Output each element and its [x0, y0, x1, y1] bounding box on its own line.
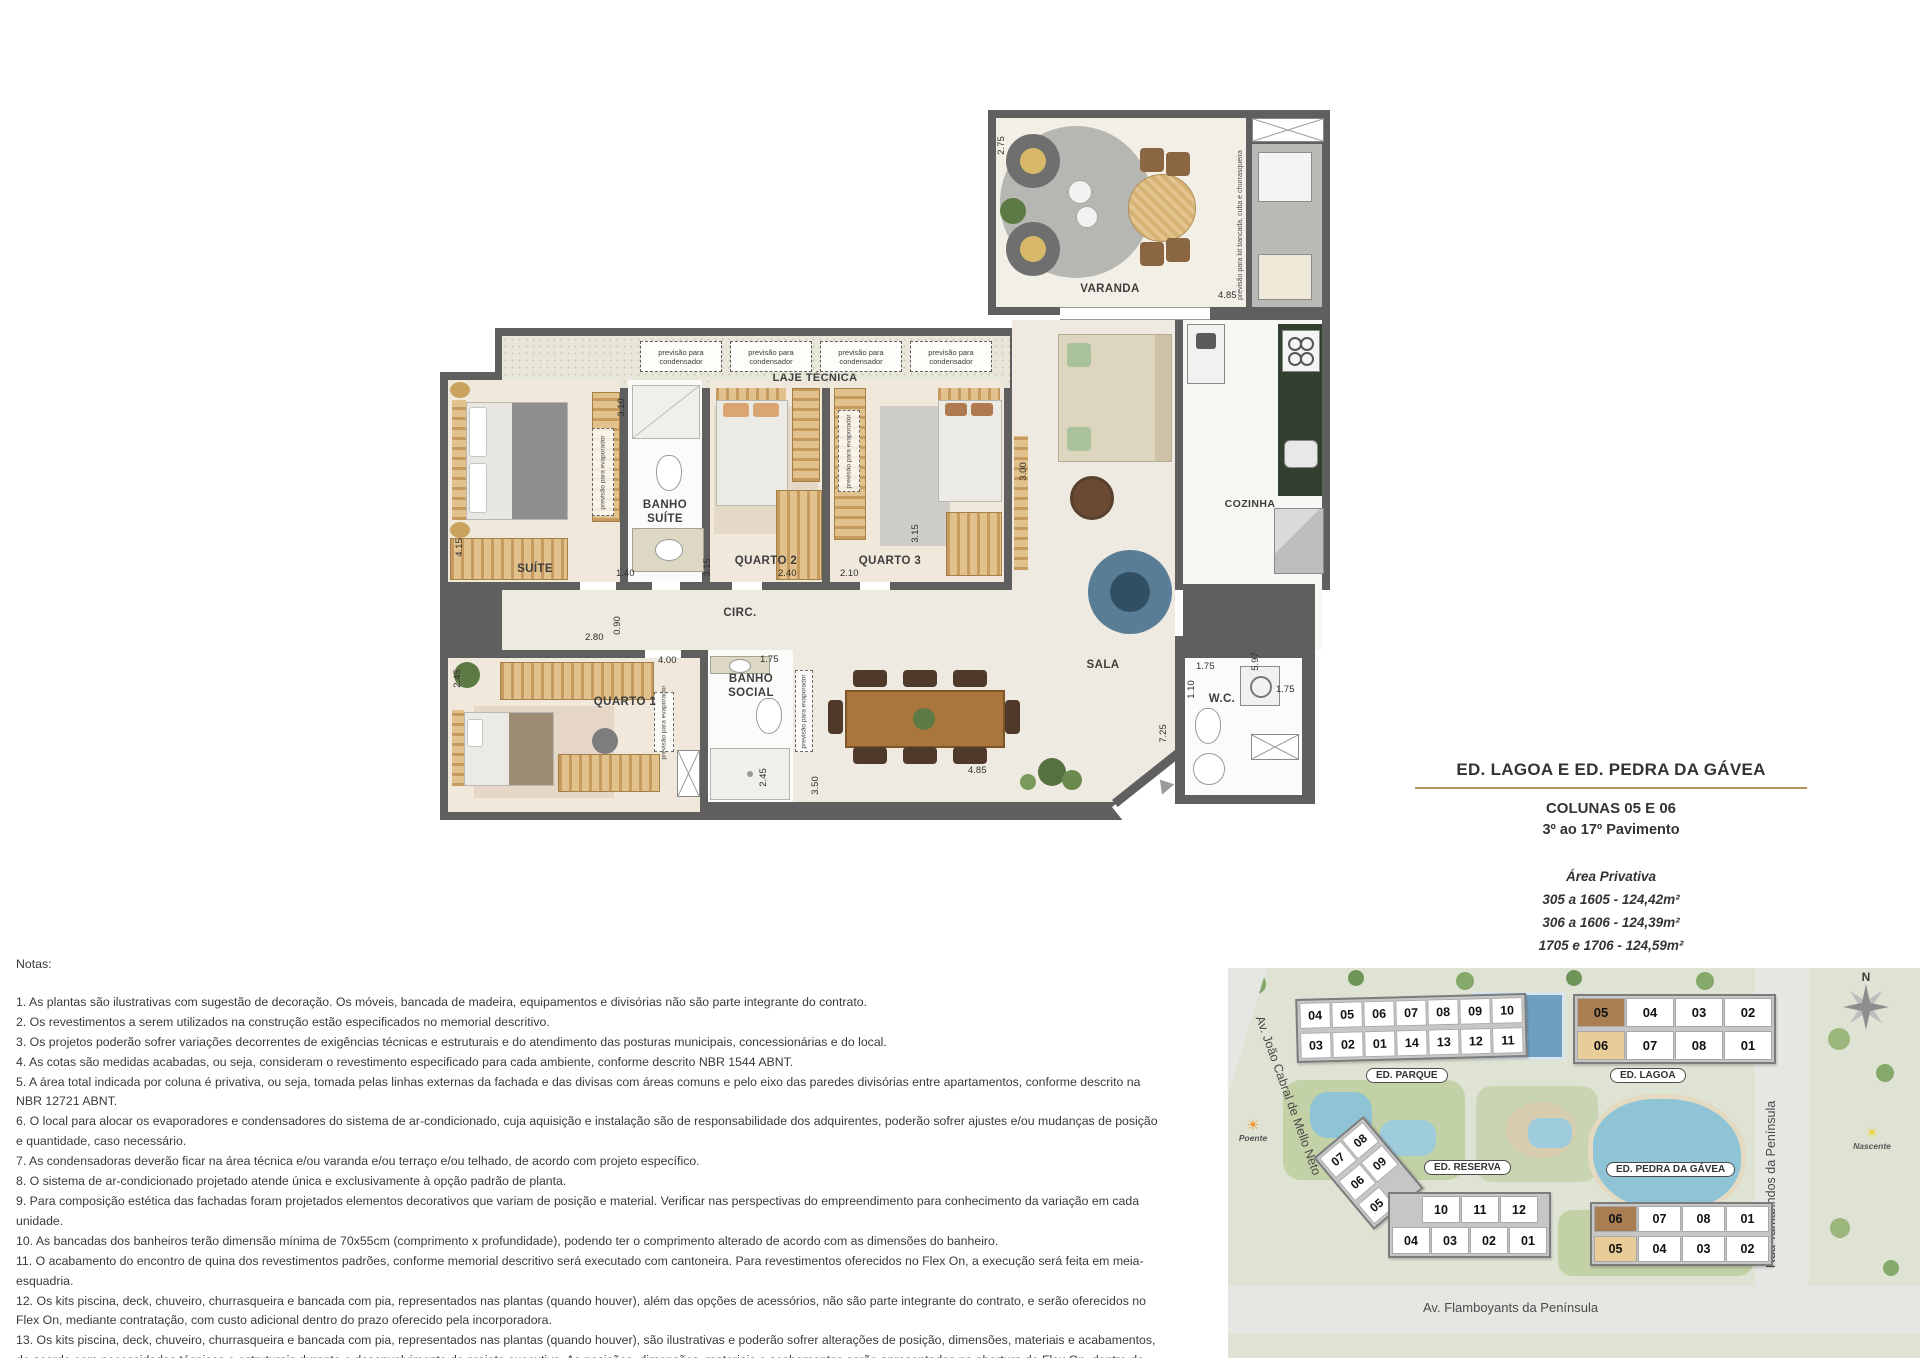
note-item: 4. As cotas são medidas acabadas, ou sej… — [16, 1053, 1166, 1073]
pillow — [467, 719, 483, 747]
building-reserva: 10 11 12 04 03 02 01 — [1388, 1192, 1551, 1258]
pillow — [971, 403, 993, 416]
compass-north-label: N — [1836, 970, 1896, 984]
unit-row: 04 03 02 01 — [1392, 1227, 1547, 1254]
cozinha-label: COZINHA — [1190, 498, 1310, 511]
note-item: 10. As bancadas dos banheiros terão dime… — [16, 1232, 1166, 1252]
varanda-label: VARANDA — [1040, 282, 1180, 296]
lagoon-pool — [1588, 1094, 1746, 1216]
armchair — [1110, 572, 1150, 612]
building-pedra-label: ED. PEDRA DA GÁVEA — [1606, 1162, 1735, 1177]
unit-row: 10 11 12 — [1422, 1196, 1547, 1223]
unit: 03 — [1300, 1032, 1332, 1059]
varanda-table — [1128, 174, 1196, 242]
toilet — [656, 455, 682, 491]
evaporator-note: previsão para evaporador — [600, 435, 607, 509]
dimension-label: 2.40 — [778, 568, 797, 579]
unit: 01 — [1509, 1227, 1547, 1254]
tree-icon — [1830, 1218, 1850, 1238]
dining-chair — [828, 700, 843, 734]
dimension-label: 2.80 — [585, 632, 604, 643]
unit: 04 — [1626, 998, 1674, 1027]
unit: 04 — [1638, 1236, 1681, 1262]
suite-bed — [466, 402, 568, 520]
tree-icon — [1566, 970, 1582, 986]
area-line: 306 a 1606 - 124,39m² — [1405, 912, 1817, 935]
unit: 10 — [1491, 997, 1523, 1024]
dimension-label: 3.10 — [616, 398, 627, 417]
wc-shaft — [1251, 734, 1299, 760]
sun-east: ☀ Nascente — [1844, 1126, 1900, 1151]
banho-suite-label: BANHO SUÍTE — [628, 498, 702, 527]
sofa-cushion — [1067, 343, 1091, 367]
kitchen-pass — [1175, 590, 1183, 636]
side-table — [1068, 180, 1092, 204]
burner — [1300, 352, 1314, 366]
pillow — [469, 463, 487, 513]
quarto1-desk — [558, 754, 660, 792]
shower-drain — [747, 771, 753, 777]
note-item: 12. Os kits piscina, deck, chuveiro, chu… — [16, 1292, 1166, 1332]
hatch-lines — [1253, 119, 1323, 141]
building-parque: 04 05 06 07 08 09 10 03 02 01 14 13 12 1… — [1295, 993, 1528, 1063]
dimension-label: 4.15 — [454, 538, 465, 557]
banho-suite-door — [652, 582, 680, 590]
quarto3-bed — [938, 400, 1002, 502]
dimension-label: 3.00 — [1018, 462, 1029, 481]
centerpiece-plant — [913, 708, 935, 730]
unit-highlighted: 06 — [1594, 1206, 1637, 1232]
condenser-note: previsão para condensador — [912, 348, 990, 366]
oven-door — [1196, 333, 1216, 349]
plant — [1000, 198, 1026, 224]
note-item: 3. Os projetos poderão sofrer variações … — [16, 1033, 1166, 1053]
shaft-x — [1252, 735, 1298, 759]
tree-icon — [1456, 972, 1474, 990]
condenser-box: previsão para condensador — [730, 341, 812, 372]
shower-glass — [633, 386, 699, 438]
dining-chair — [853, 747, 887, 764]
condenser-box: previsão para condensador — [820, 341, 902, 372]
dimension-label: 1.75 — [1276, 684, 1295, 695]
quarto2-headboard — [716, 388, 786, 400]
toilet — [756, 698, 782, 734]
side-table — [1076, 206, 1098, 228]
sun-icon: ☀ — [1230, 1118, 1276, 1133]
area-line: 305 a 1605 - 124,42m² — [1405, 889, 1817, 912]
unit: 02 — [1726, 1236, 1769, 1262]
unit: 08 — [1682, 1206, 1725, 1232]
title-block: ED. LAGOA E ED. PEDRA DA GÁVEA COLUNAS 0… — [1405, 760, 1817, 958]
desk-chair — [592, 728, 618, 754]
dimension-label: 3.50 — [810, 776, 821, 795]
sofa-back — [1155, 335, 1171, 461]
condenser-note: previsão para condensador — [732, 348, 810, 366]
unit: 07 — [1638, 1206, 1681, 1232]
compass-icon: N — [1836, 970, 1896, 1040]
suite-label: SUÍTE — [485, 562, 585, 576]
wc-basin — [1193, 753, 1225, 785]
pillow — [945, 403, 967, 416]
unit: 02 — [1724, 998, 1772, 1027]
condenser-note: previsão para condensador — [822, 348, 900, 366]
tree-icon — [1883, 1260, 1899, 1276]
building-parque-label: ED. PARQUE — [1366, 1068, 1448, 1083]
dining-chair — [903, 670, 937, 687]
dining-table — [845, 690, 1005, 748]
sun-west: ☀ Poente — [1230, 1118, 1276, 1143]
hatch-box — [1252, 118, 1324, 142]
note-item: 9. Para composição estética das fachadas… — [16, 1192, 1166, 1232]
note-item: 7. As condensadoras deverão ficar na áre… — [16, 1152, 1166, 1172]
unit: 13 — [1428, 1029, 1460, 1056]
unit: 07 — [1395, 1000, 1427, 1027]
tree-icon — [1696, 972, 1714, 990]
unit: 01 — [1364, 1030, 1396, 1057]
pillow — [469, 407, 487, 457]
page: previsão para condensador previsão para … — [0, 0, 1920, 1358]
unit: 10 — [1422, 1196, 1460, 1223]
unit-highlighted: 05 — [1577, 998, 1625, 1027]
evaporator-box: previsão para evaporador — [838, 410, 860, 492]
unit: 03 — [1682, 1236, 1725, 1262]
circ-label: CIRC. — [680, 606, 800, 620]
quarto1-blanket — [509, 713, 553, 785]
floors-subtitle: 3º ao 17º Pavimento — [1405, 822, 1817, 838]
dining-chair — [953, 670, 987, 687]
kit-note: previsão para kit bancada, cuba e churra… — [1237, 150, 1244, 300]
unit: 08 — [1427, 999, 1459, 1026]
egg-chair — [1006, 222, 1060, 276]
unit: 04 — [1392, 1227, 1430, 1254]
suite-headboard — [452, 400, 466, 520]
shower-box — [710, 748, 790, 800]
egg-chair-cushion — [1020, 236, 1046, 262]
tree-icon — [1876, 1064, 1894, 1082]
dimension-label: 4.85 — [968, 765, 987, 776]
unit: 08 — [1675, 1031, 1723, 1060]
kit-bench-area — [1252, 144, 1322, 307]
varanda-chair — [1140, 242, 1164, 266]
condenser-note: previsão para condensador — [642, 348, 720, 366]
unit-highlighted: 06 — [1577, 1031, 1625, 1060]
notes-section: Notas: 1. As plantas são ilustrativas co… — [16, 955, 1166, 1358]
dimension-label: 4.00 — [658, 655, 677, 666]
nightstand — [450, 522, 470, 538]
quarto3-chest — [946, 512, 1002, 576]
dining-chair — [853, 670, 887, 687]
building-lagoa-label: ED. LAGOA — [1610, 1068, 1686, 1083]
columns-subtitle: COLUNAS 05 E 06 — [1405, 800, 1817, 817]
building-lagoa: 05 04 03 02 06 07 08 01 — [1573, 994, 1776, 1064]
unit: 09 — [1459, 998, 1491, 1025]
quarto2-label: QUARTO 2 — [708, 554, 824, 568]
plant — [1062, 770, 1082, 790]
quarto1-label: QUARTO 1 — [560, 695, 690, 709]
condenser-box: previsão para condensador — [910, 341, 992, 372]
shaft-x — [678, 751, 699, 796]
sofa — [1058, 334, 1172, 462]
varanda-slider-door — [1060, 307, 1210, 320]
dimension-label: 2.45 — [758, 768, 769, 787]
unit: 07 — [1626, 1031, 1674, 1060]
condenser-box: previsão para condensador — [640, 341, 722, 372]
unit: 05 — [1331, 1001, 1363, 1028]
wc-floor — [1185, 658, 1302, 795]
wc-toilet — [1195, 708, 1221, 744]
area-heading: Área Privativa — [1405, 866, 1817, 889]
tree-icon — [1348, 970, 1364, 986]
varanda-chair — [1166, 152, 1190, 176]
note-item: 5. A área total indicada por coluna é pr… — [16, 1073, 1166, 1113]
dining-chair — [903, 747, 937, 764]
coffee-table — [1070, 476, 1114, 520]
wc-label: W.C. — [1192, 692, 1252, 706]
unit: 12 — [1460, 1028, 1492, 1055]
quarto3-label: QUARTO 3 — [830, 554, 950, 568]
oven-column — [1187, 324, 1225, 384]
sink — [655, 539, 683, 561]
banho-social-label: BANHO SOCIAL — [712, 672, 790, 701]
unit: 01 — [1724, 1031, 1772, 1060]
site-map: Av. João Cabral de Mello Neto Rua Tamari… — [1228, 968, 1920, 1358]
unit: 02 — [1470, 1227, 1508, 1254]
unit-highlighted: 05 — [1594, 1236, 1637, 1262]
dimension-label: 2.10 — [840, 568, 859, 579]
quarto3-door — [860, 582, 890, 590]
pillow — [753, 403, 779, 417]
pool — [1528, 1118, 1572, 1148]
unit: 11 — [1492, 1027, 1524, 1054]
unit: 01 — [1726, 1206, 1769, 1232]
egg-chair-cushion — [1020, 148, 1046, 174]
quarto1-bed — [464, 712, 554, 786]
round-rug — [1088, 550, 1172, 634]
dimension-label: 1.75 — [760, 654, 779, 665]
egg-chair — [1006, 134, 1060, 188]
sun-west-label: Poente — [1230, 1133, 1276, 1143]
sala-label: SALA — [1048, 658, 1158, 672]
street-bottom-label: Av. Flamboyants da Península — [1423, 1300, 1598, 1315]
note-item: 1. As plantas são ilustrativas com suges… — [16, 993, 1166, 1013]
dining-chair — [953, 747, 987, 764]
note-item: 8. O sistema de ar-condicionado projetad… — [16, 1172, 1166, 1192]
unit: 04 — [1299, 1002, 1331, 1029]
dimension-label: 7.25 — [1158, 724, 1169, 743]
unit-row: 04 05 06 07 08 09 10 — [1299, 997, 1523, 1029]
varanda-chair — [1166, 238, 1190, 262]
shaft — [677, 750, 700, 797]
title-rule — [1415, 787, 1807, 789]
quarto3-headboard — [938, 388, 1000, 400]
floorplan: previsão para condensador previsão para … — [440, 110, 1345, 825]
quarto2-door — [732, 582, 762, 590]
note-item: 6. O local para alocar os evaporadores e… — [16, 1112, 1166, 1152]
sun-icon: ☀ — [1844, 1126, 1900, 1141]
sun-east-label: Nascente — [1844, 1141, 1900, 1151]
plan-title: ED. LAGOA E ED. PEDRA DA GÁVEA — [1405, 760, 1817, 780]
evaporator-box: previsão para evaporador — [795, 670, 813, 752]
dimension-label: 3.15 — [702, 558, 713, 577]
unit: 14 — [1396, 1030, 1428, 1057]
unit: 11 — [1461, 1196, 1499, 1223]
plant — [1020, 774, 1036, 790]
dimension-label: 3.15 — [910, 524, 921, 543]
kitchen-counter — [1278, 324, 1322, 496]
unit: 02 — [1332, 1031, 1364, 1058]
private-area-block: Área Privativa 305 a 1605 - 124,42m² 306… — [1405, 866, 1817, 958]
cooktop — [1282, 330, 1320, 372]
suite-door — [580, 582, 616, 590]
kitchen-sink — [1284, 440, 1318, 468]
washing-machine-door — [1250, 676, 1272, 698]
notes-heading: Notas: — [16, 955, 1166, 975]
kit-counter — [1258, 152, 1312, 202]
note-item: 2. Os revestimentos a serem utilizados n… — [16, 1013, 1166, 1033]
dimension-label: 4.85 — [1218, 290, 1237, 301]
tv-panel — [1014, 436, 1028, 570]
vanity-counter — [632, 528, 704, 572]
unit: 03 — [1675, 998, 1723, 1027]
unit: 06 — [1363, 1000, 1395, 1027]
unit-row: 05 04 03 02 — [1577, 998, 1772, 1027]
dimension-label: 1.75 — [1196, 661, 1215, 672]
dimension-label: 0.90 — [612, 616, 623, 635]
note-item: 13. Os kits piscina, deck, chuveiro, chu… — [16, 1331, 1166, 1358]
quarto1-headboard — [452, 710, 464, 786]
burner — [1300, 337, 1314, 351]
nightstand — [450, 382, 470, 398]
sofa-cushion — [1067, 427, 1091, 451]
unit: 03 — [1431, 1227, 1469, 1254]
pillow — [723, 403, 749, 417]
dimension-label: 5.97 — [1250, 652, 1261, 671]
unit-row: 03 02 01 14 13 12 11 — [1300, 1027, 1524, 1059]
varanda-chair — [1140, 148, 1164, 172]
unit-row: 06 07 08 01 — [1594, 1206, 1769, 1232]
fridge — [1274, 508, 1324, 574]
unit: 12 — [1500, 1196, 1538, 1223]
note-item: 11. O acabamento do encontro de quina do… — [16, 1252, 1166, 1292]
sink — [729, 659, 751, 673]
evaporator-note: previsão para evaporador — [801, 674, 808, 748]
laje-label: LAJE TÉCNICA — [690, 372, 940, 386]
unit-row: 05 04 03 02 — [1594, 1236, 1769, 1262]
area-line: 1705 e 1706 - 124,59m² — [1405, 935, 1817, 958]
evaporator-box: previsão para evaporador — [592, 428, 614, 516]
evaporator-note: previsão para evaporador — [846, 414, 853, 488]
dimension-label: 1.40 — [616, 568, 635, 579]
building-pedra: 06 07 08 01 05 04 03 02 — [1590, 1202, 1773, 1266]
suite-blanket — [512, 403, 567, 519]
shower-box — [632, 385, 700, 439]
kit-cabinet — [1258, 254, 1312, 300]
dining-chair — [1005, 700, 1020, 734]
notes-list: 1. As plantas são ilustrativas com suges… — [16, 993, 1166, 1358]
unit-row: 06 07 08 01 — [1577, 1031, 1772, 1060]
dimension-label: 1.10 — [1186, 680, 1197, 699]
dimension-label: 2.75 — [996, 136, 1007, 155]
building-reserva-label: ED. RESERVA — [1424, 1160, 1511, 1175]
quarto2-desk — [792, 388, 820, 482]
dimension-label: 2.45 — [452, 669, 463, 688]
